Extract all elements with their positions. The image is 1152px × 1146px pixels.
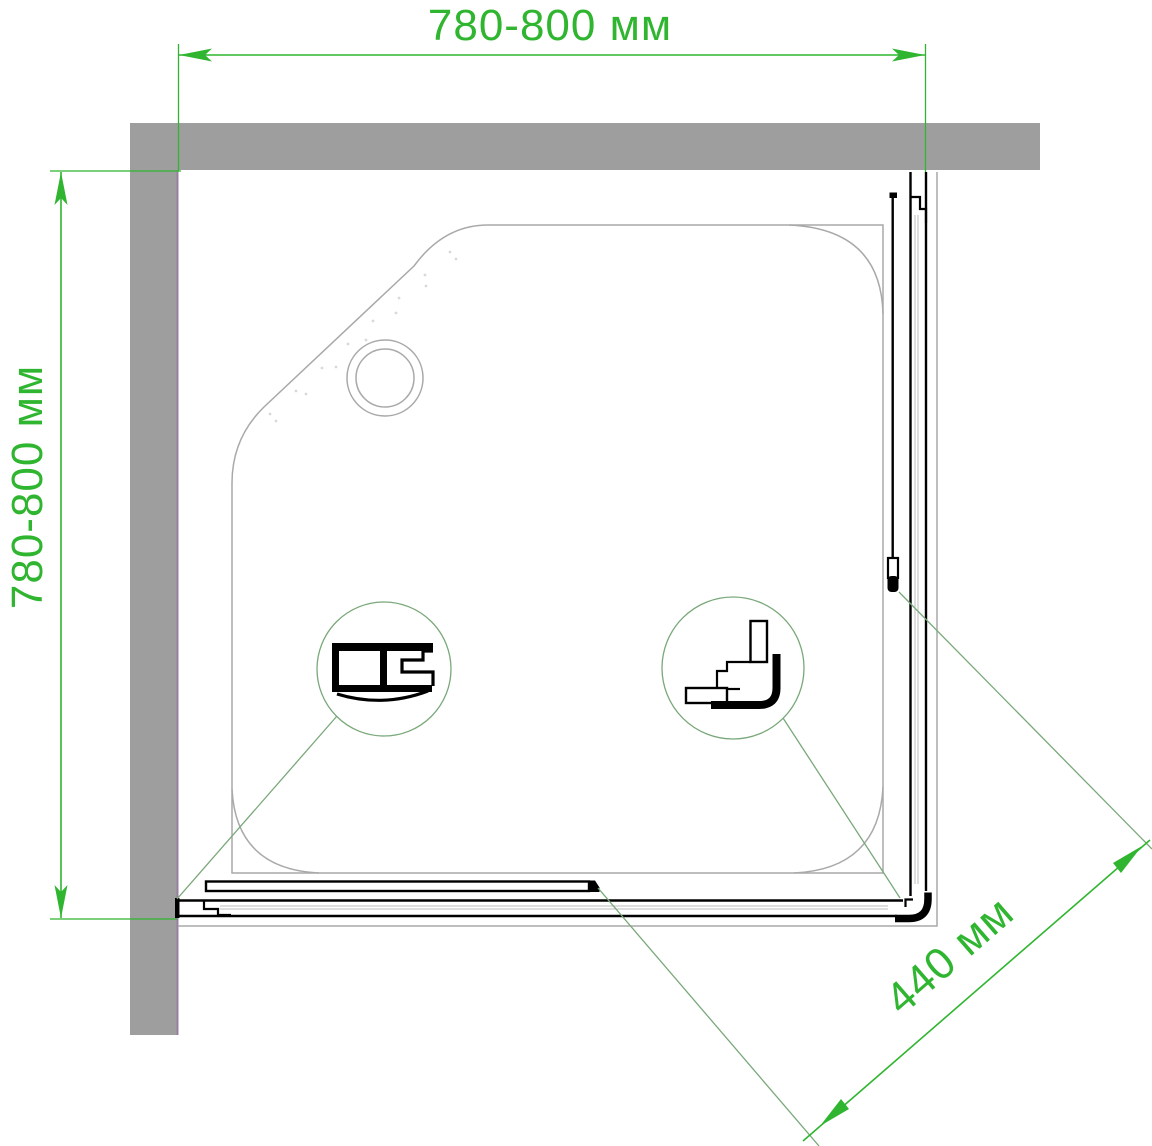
corner-connector-band	[895, 893, 928, 919]
right-door-end-cap	[888, 576, 899, 592]
detail-circle-corner-profile	[662, 597, 900, 898]
drain-inner-circle	[356, 349, 414, 407]
right-door-top-tick	[890, 193, 898, 199]
tray-rim-outline	[232, 225, 883, 873]
wall-left	[130, 123, 178, 1035]
drain-outer-circle	[347, 340, 423, 416]
right-door-assembly	[888, 172, 927, 896]
bottom-sliding-door	[206, 882, 589, 892]
corner-connector	[895, 893, 928, 919]
dimension-label-top-width: 780-800 мм	[425, 2, 675, 50]
tray-basin-corner-top-right	[789, 225, 883, 314]
dimension-label-left-depth: 780-800 мм	[4, 362, 52, 612]
walls	[130, 123, 1040, 1035]
shower-tray	[232, 225, 883, 873]
bottom-door-assembly	[175, 881, 903, 919]
dimension-entry-diagonal	[598, 592, 1152, 1146]
wall-profile-section	[332, 643, 433, 700]
detail-circle-wall-profile	[177, 602, 451, 899]
enclosure-outer-boundary	[178, 172, 937, 926]
corner-profile-section	[686, 621, 777, 705]
leader-line-1	[177, 716, 337, 899]
arrowhead-diag-bottom	[820, 1099, 849, 1126]
bottom-rail-wall-profile	[175, 898, 180, 918]
bottom-door-end-cap	[589, 881, 600, 893]
dimension-line-diagonal	[803, 840, 1150, 1141]
tray-basin-corner-bottom-left	[232, 789, 319, 873]
tray-basin-corner-bottom-right	[794, 787, 883, 873]
right-door-end-profile	[888, 558, 898, 578]
detail-circle-2	[662, 597, 804, 739]
corner-connector-notch	[906, 900, 914, 908]
bottom-rail-wall-profile-step	[204, 901, 231, 915]
wall-top	[130, 123, 1040, 170]
shower-enclosure-top-view-drawing: 780-800 мм 780-800 мм 440 мм	[0, 0, 1152, 1146]
technical-drawing-canvas	[0, 0, 1152, 1146]
